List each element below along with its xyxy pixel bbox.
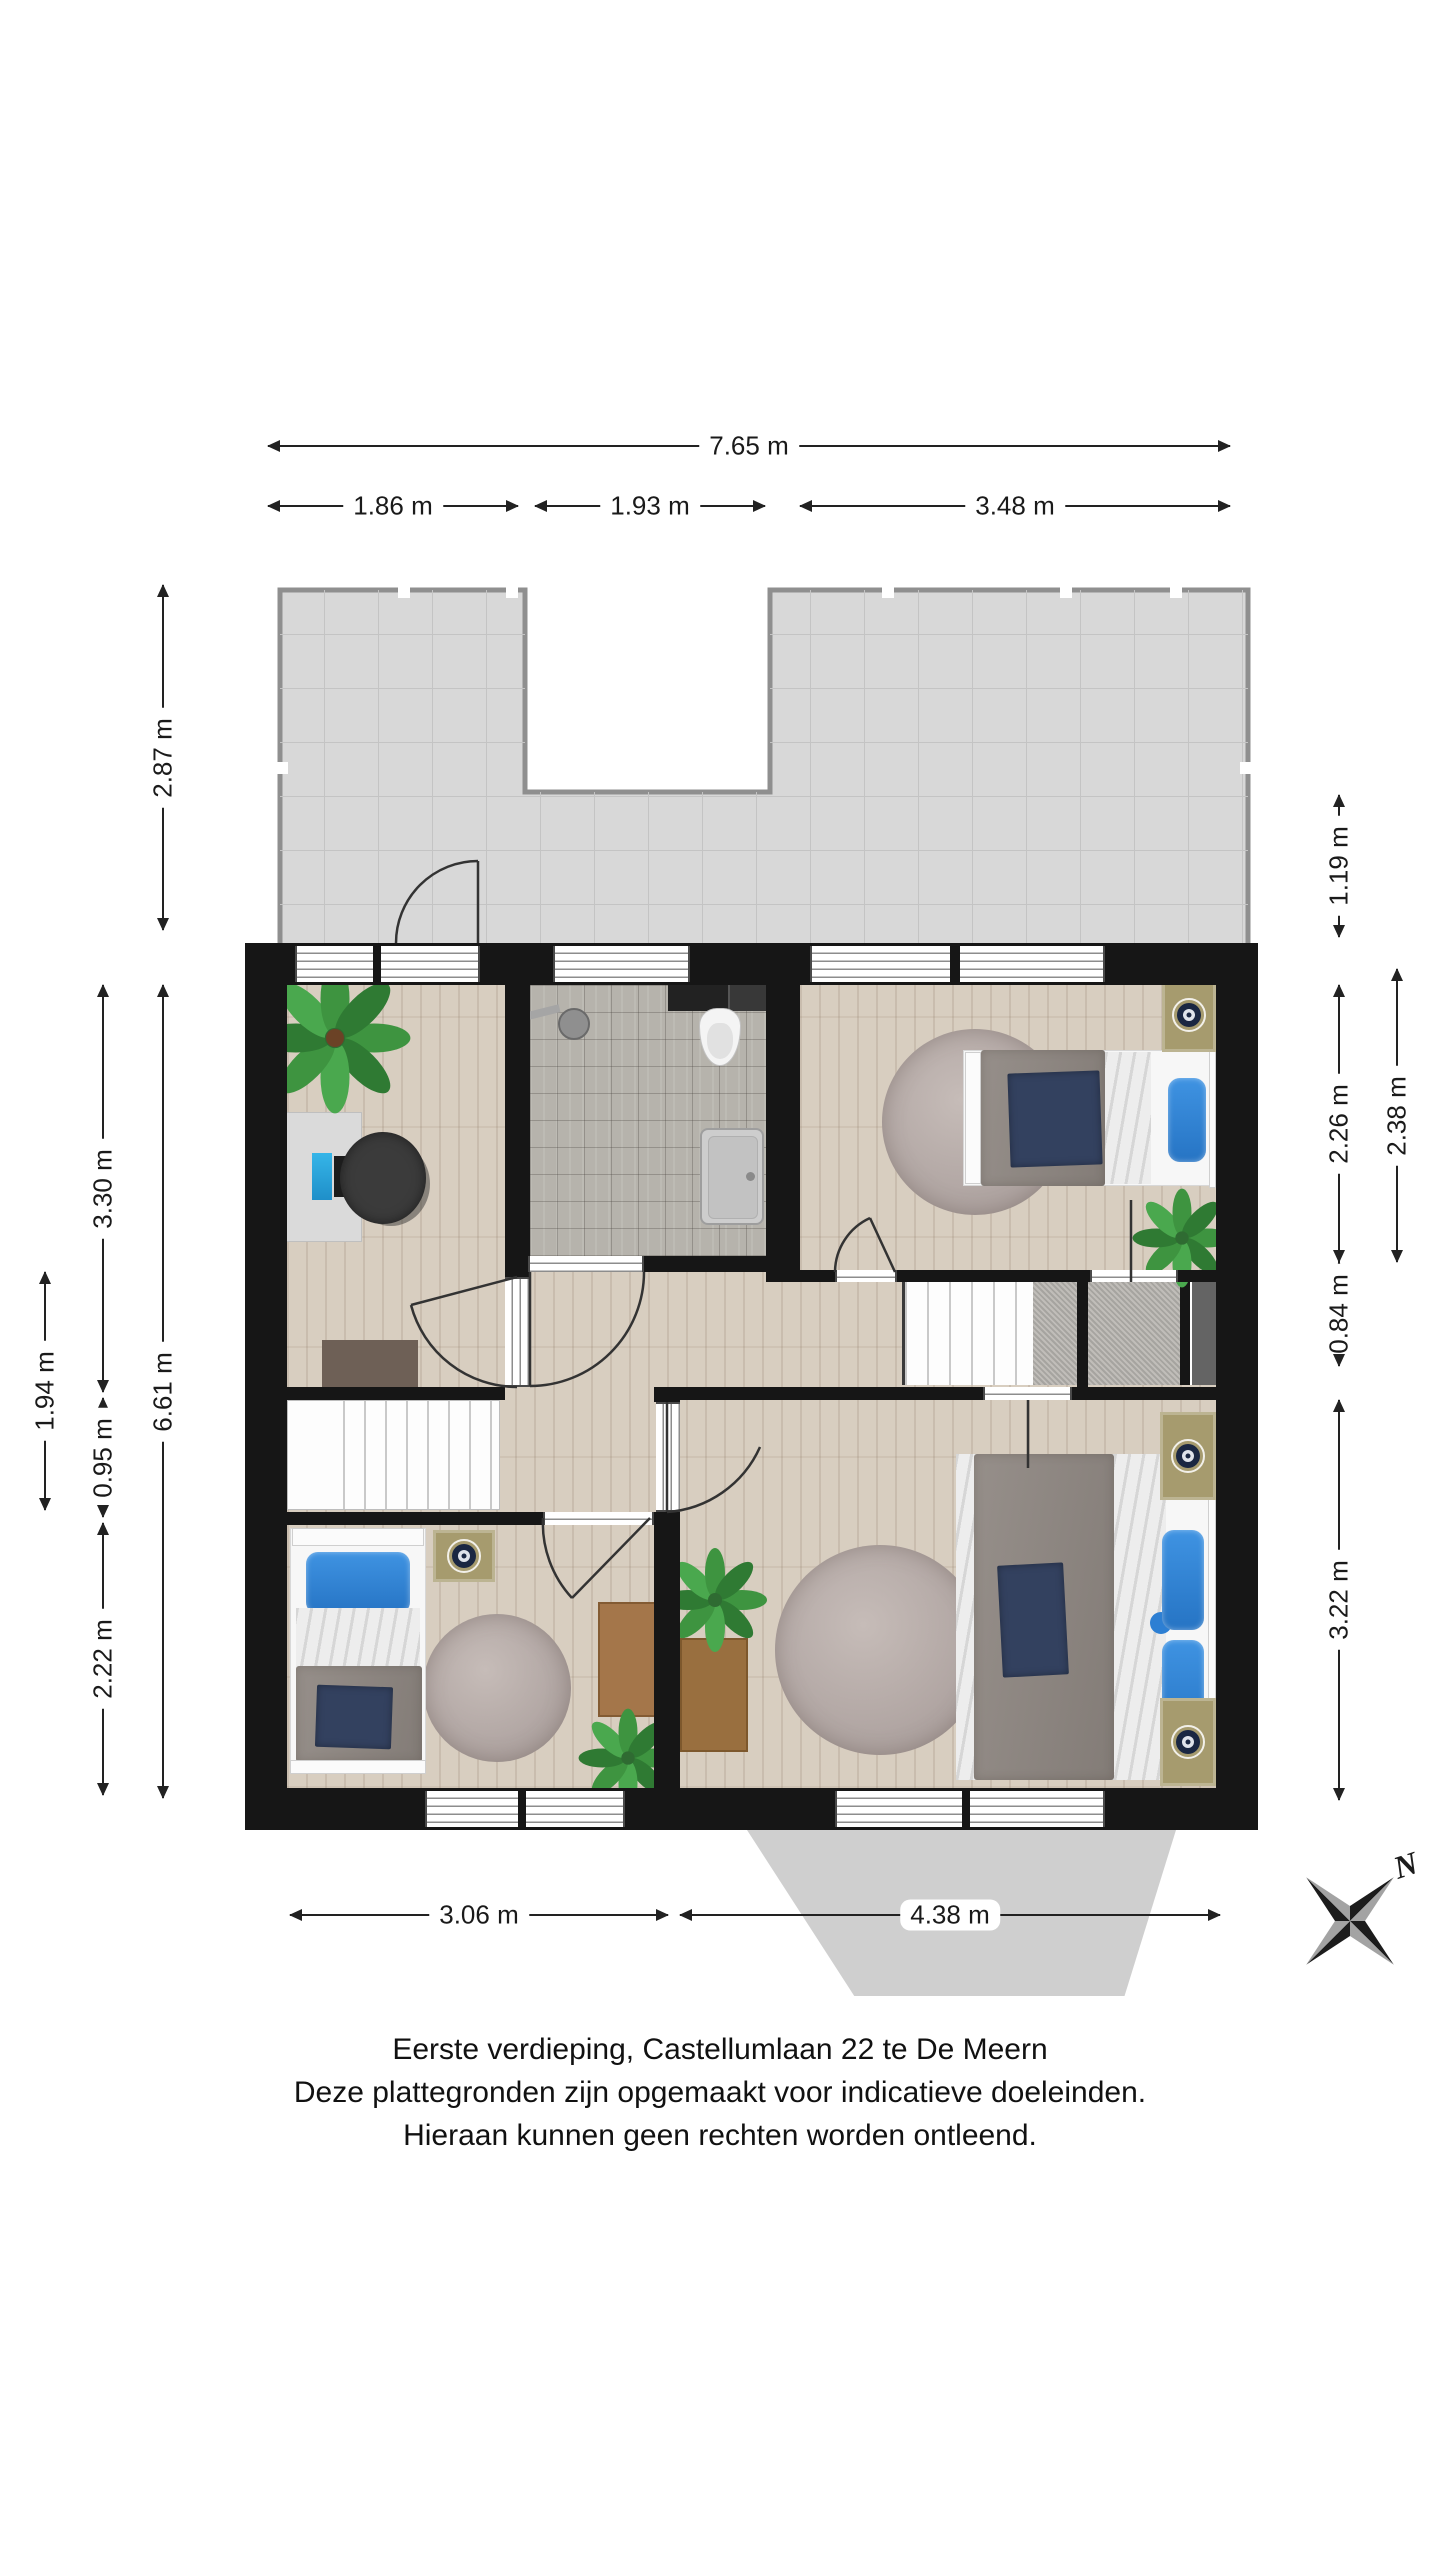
caption-line-1: Eerste verdieping, Castellumlaan 22 te D… <box>0 2028 1440 2071</box>
dim-label: 3.48 m <box>965 491 1065 522</box>
dim-top-seg1: 1.86 m <box>268 505 518 507</box>
door-bathroom <box>530 1272 644 1386</box>
dim-stairs-depth: 0.95 m <box>102 1398 104 1517</box>
dim-label: 3.30 m <box>88 1139 119 1239</box>
compass-north-label: N <box>1388 1844 1424 1886</box>
dim-hall-depth: 1.94 m <box>44 1272 46 1510</box>
dim-floor-depth: 6.61 m <box>162 985 164 1798</box>
compass-rose: N <box>1270 1837 1440 2007</box>
dim-bedroom-tr-outer: 2.38 m <box>1396 969 1398 1262</box>
dim-label: 2.38 m <box>1382 1066 1413 1166</box>
dim-landing-depth: 0.84 m <box>1338 1262 1340 1366</box>
caption-line-2: Deze plattegronden zijn opgemaakt voor i… <box>0 2071 1440 2114</box>
dim-bedroom-bl-width: 3.06 m <box>290 1914 668 1916</box>
dim-label: 3.06 m <box>429 1900 529 1931</box>
dim-label: 0.95 m <box>88 1408 119 1508</box>
dim-label: 4.38 m <box>900 1900 1000 1931</box>
door-bedroom-tr <box>835 1218 895 1272</box>
dim-bedroom-bl-depth: 2.22 m <box>102 1523 104 1795</box>
dim-terrace-depth: 2.87 m <box>162 585 164 930</box>
dim-label: 1.86 m <box>343 491 443 522</box>
dim-label: 0.84 m <box>1324 1264 1355 1364</box>
door-arcs <box>0 0 1440 2560</box>
floorplan-canvas: 7.65 m 1.86 m 1.93 m 3.48 m 2.87 m 6.61 … <box>0 0 1440 2560</box>
door-bedroom-br <box>667 1402 760 1512</box>
dim-label: 2.26 m <box>1324 1074 1355 1174</box>
dim-top-seg3: 3.48 m <box>800 505 1230 507</box>
door-terrace <box>396 861 478 943</box>
dim-bedroom-br-depth: 3.22 m <box>1338 1400 1340 1800</box>
dim-top-seg2: 1.93 m <box>535 505 765 507</box>
dim-label: 2.22 m <box>88 1609 119 1709</box>
dim-label: 3.22 m <box>1324 1550 1355 1650</box>
door-bedroom-bl <box>543 1518 650 1598</box>
dim-label: 6.61 m <box>148 1342 179 1442</box>
door-office <box>411 1277 517 1387</box>
dim-total-width: 7.65 m <box>268 445 1230 447</box>
dim-label: 2.87 m <box>148 708 179 808</box>
dim-label: 7.65 m <box>699 431 799 462</box>
dim-office-depth: 3.30 m <box>102 985 104 1392</box>
dim-label: 1.93 m <box>600 491 700 522</box>
dim-terrace-right-depth: 1.19 m <box>1338 795 1340 937</box>
caption: Eerste verdieping, Castellumlaan 22 te D… <box>0 2028 1440 2157</box>
compass-star <box>1306 1877 1394 1965</box>
dim-label: 1.19 m <box>1324 816 1355 916</box>
caption-line-3: Hieraan kunnen geen rechten worden ontle… <box>0 2114 1440 2157</box>
dim-bedroom-br-width: 4.38 m <box>680 1914 1220 1916</box>
dim-label: 1.94 m <box>30 1341 61 1441</box>
dim-bedroom-tr-depth: 2.26 m <box>1338 985 1340 1262</box>
